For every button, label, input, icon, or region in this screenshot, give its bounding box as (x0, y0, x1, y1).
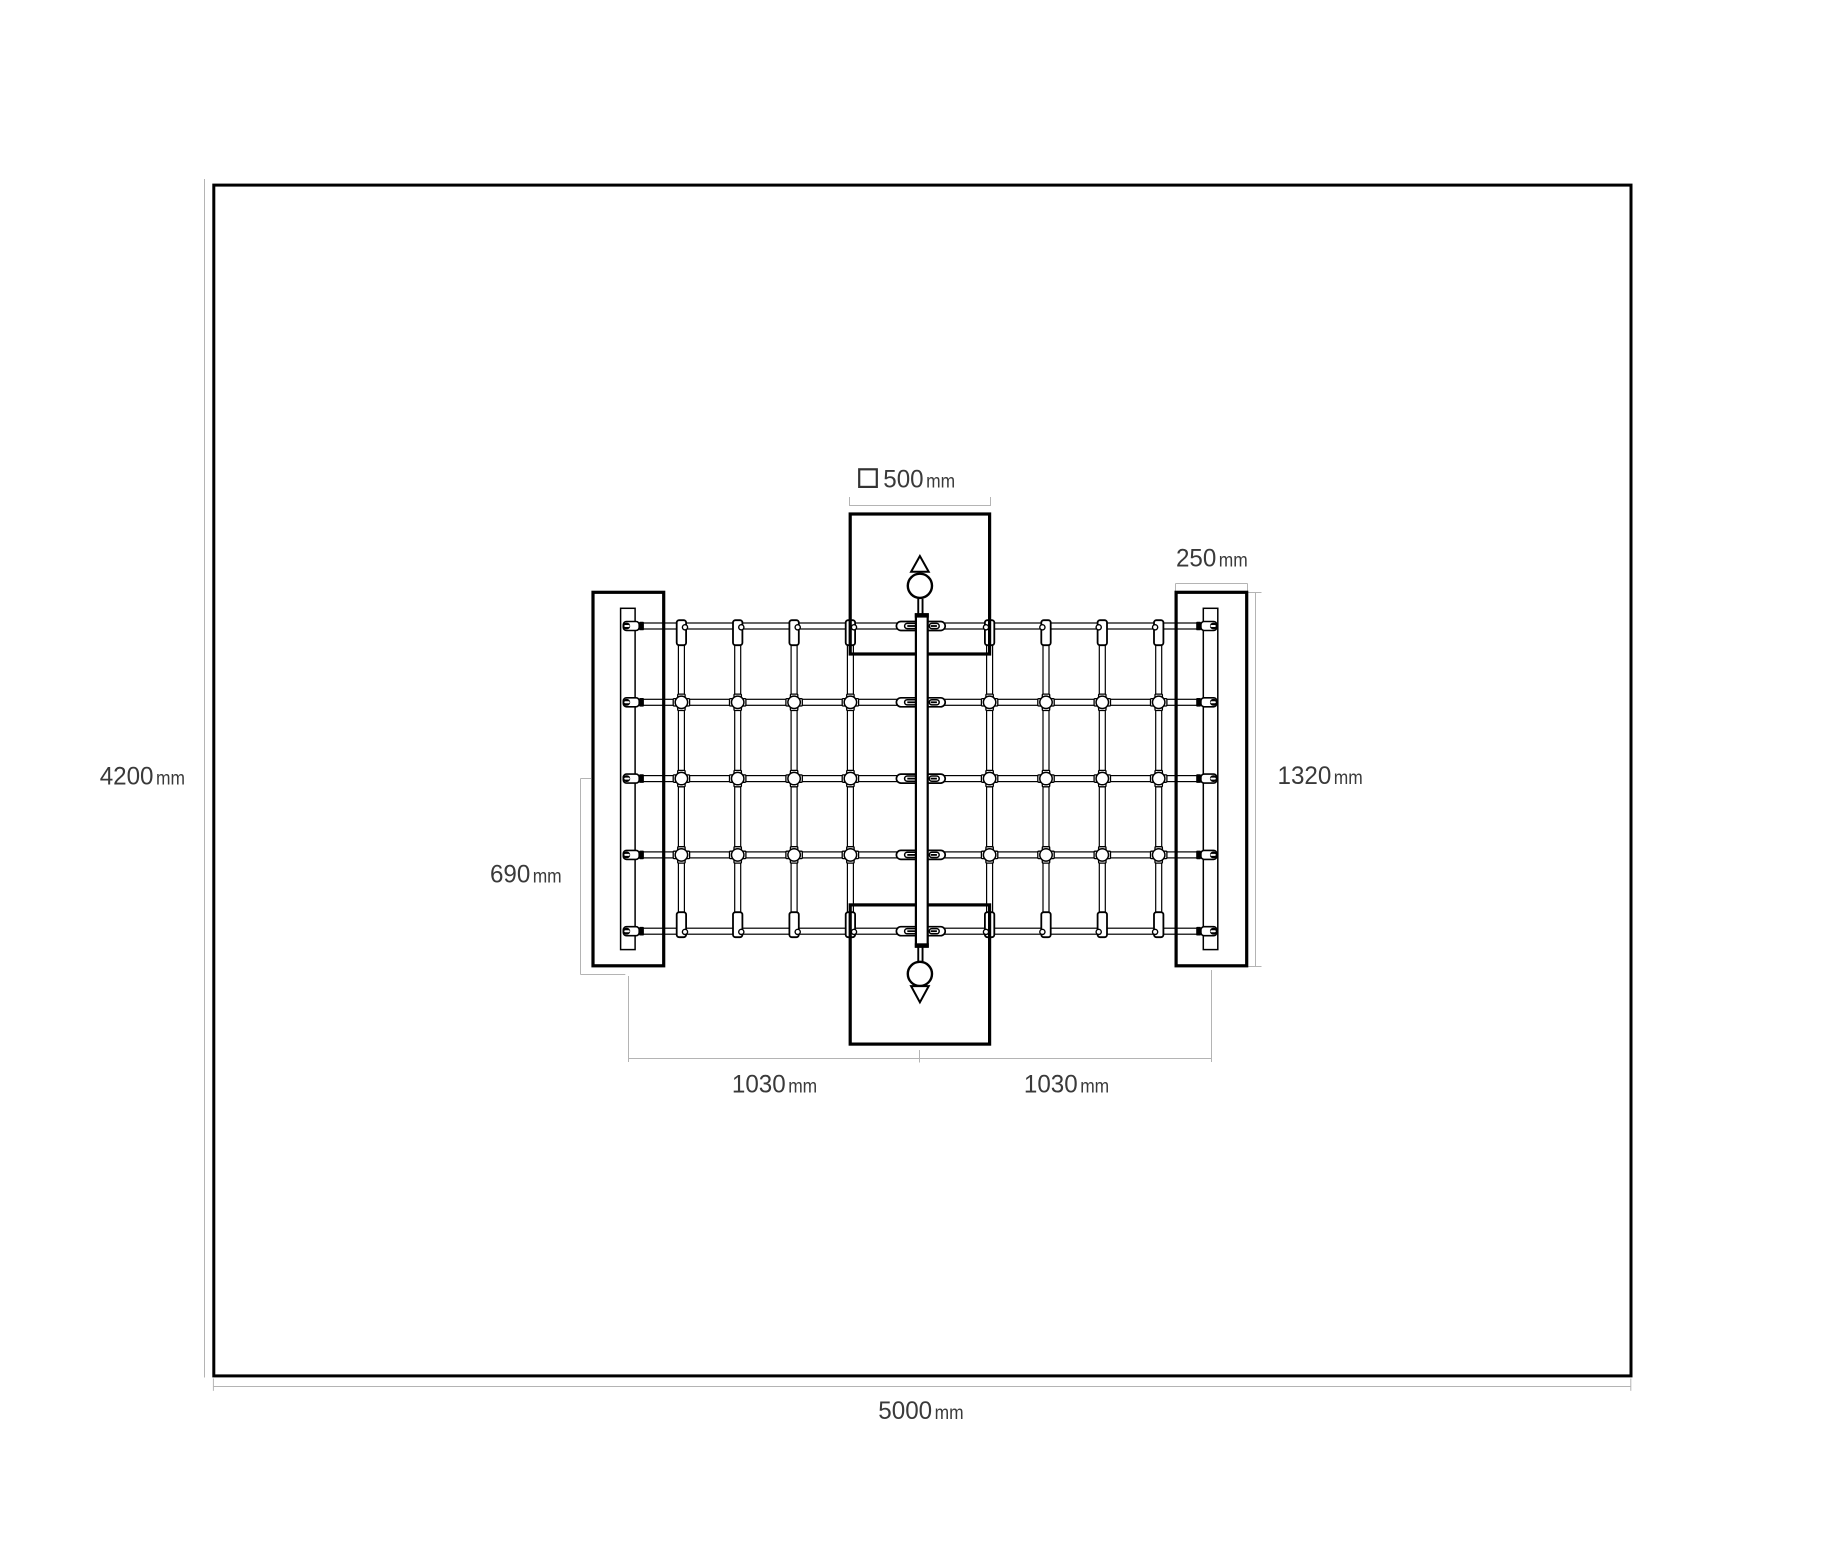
svg-text:4200: 4200 (100, 763, 154, 791)
svg-text:mm: mm (788, 1075, 817, 1097)
svg-text:mm: mm (533, 866, 562, 888)
svg-text:690: 690 (490, 861, 530, 889)
svg-text:mm: mm (1334, 767, 1363, 789)
svg-text:mm: mm (935, 1402, 964, 1424)
svg-text:1030: 1030 (732, 1070, 786, 1098)
svg-text:mm: mm (156, 768, 185, 790)
svg-text:mm: mm (926, 471, 955, 493)
svg-text:1030: 1030 (1024, 1070, 1078, 1098)
svg-text:250: 250 (1176, 545, 1216, 573)
svg-text:mm: mm (1219, 550, 1248, 572)
svg-text:1320: 1320 (1278, 762, 1332, 790)
svg-text:500: 500 (883, 466, 923, 494)
svg-text:5000: 5000 (878, 1397, 932, 1425)
svg-text:mm: mm (1080, 1075, 1109, 1097)
